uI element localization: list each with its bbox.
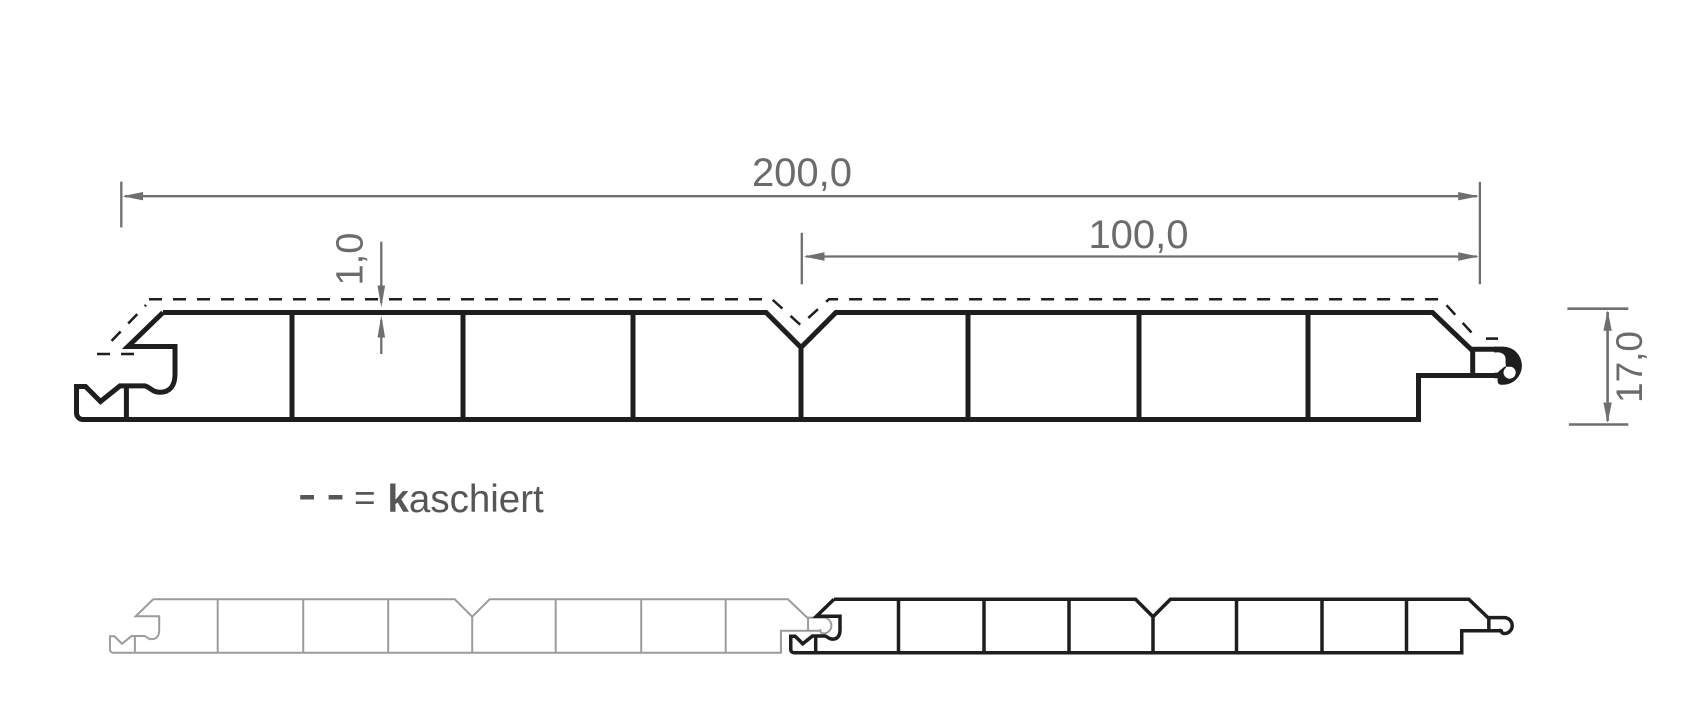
svg-text:100,0: 100,0 [1088, 213, 1188, 257]
svg-text:kaschiert: kaschiert [388, 478, 545, 521]
svg-text:17,0: 17,0 [1609, 331, 1650, 403]
svg-text:=: = [354, 477, 376, 518]
svg-text:200,0: 200,0 [752, 151, 852, 195]
svg-text:1,0: 1,0 [330, 233, 372, 286]
